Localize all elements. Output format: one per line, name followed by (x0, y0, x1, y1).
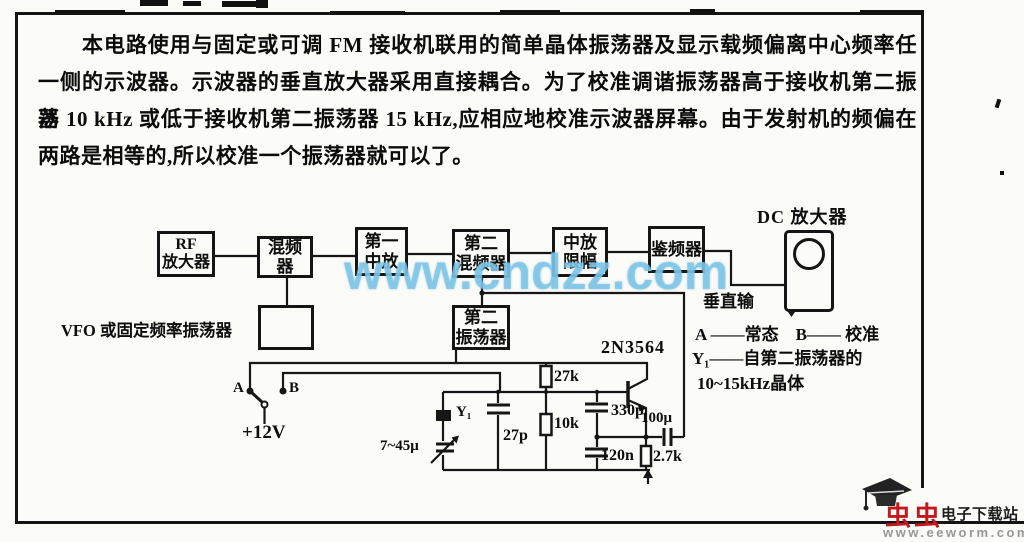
label-capacitor-120n: 120n (601, 447, 634, 465)
label-capacitor-100u: 100μ (641, 410, 672, 427)
block-mixer-1: 混频器 (257, 236, 313, 278)
site-description: 电子下载站 (941, 503, 1019, 524)
label-switch-b: B (289, 380, 299, 397)
label-resistor-10k: 10k (554, 415, 579, 433)
label-dc-amplifier: DC 放大器 (757, 203, 848, 229)
label-transistor-2n3564: 2N3564 (601, 337, 665, 358)
label-switch-a: A (233, 380, 244, 397)
label-resistor-2.7k: 2.7k (653, 448, 682, 466)
label-capacitor-330p: 330p (611, 402, 644, 420)
watermark-cndzz: www.cndzz.com (344, 243, 728, 301)
label-supply-12v: +12V (242, 422, 286, 444)
block-vfo (258, 305, 314, 350)
legend-line-3: 10~15kHz晶体 (697, 369, 804, 394)
label-vfo: VFO 或固定频率振荡器 (61, 317, 232, 341)
label-crystal-y1: Y₁ (456, 404, 471, 421)
label-trimmer-7-45u: 7~45μ (380, 438, 419, 455)
site-url: www.eeworm.com (883, 525, 1024, 540)
oscilloscope (784, 230, 834, 312)
label-capacitor-27p: 27p (503, 427, 528, 445)
legend-line-2: Y₁——自第二振荡器的 (692, 344, 862, 369)
block-oscillator-2: 第二 振荡器 (452, 305, 510, 350)
scanned-page: 本电路使用与固定或可调 FM 接收机联用的简单晶体振荡器及显示载频偏离中心频率任… (0, 0, 1024, 542)
legend-line-1: A ——常态 B—— 校准 (695, 320, 879, 345)
block-rf-amplifier: RF 放大器 (157, 231, 215, 277)
label-resistor-27k: 27k (554, 368, 579, 386)
oscilloscope-screen-icon (793, 238, 825, 270)
